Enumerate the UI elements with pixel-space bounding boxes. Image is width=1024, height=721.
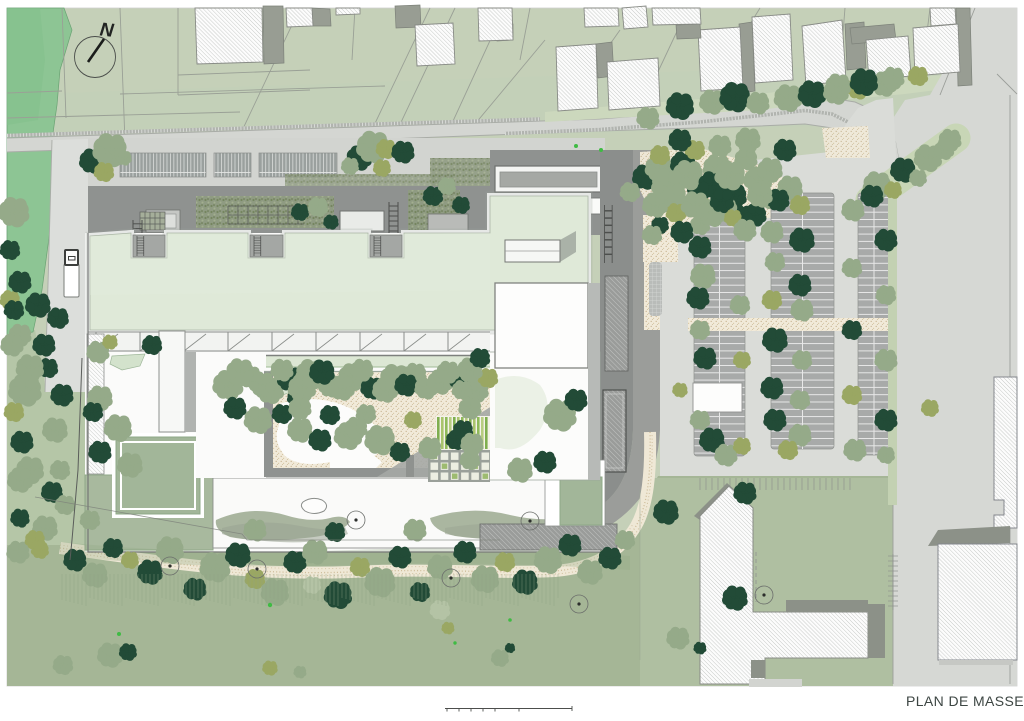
svg-text:PLAN DE MASSE: PLAN DE MASSE — [906, 693, 1024, 709]
